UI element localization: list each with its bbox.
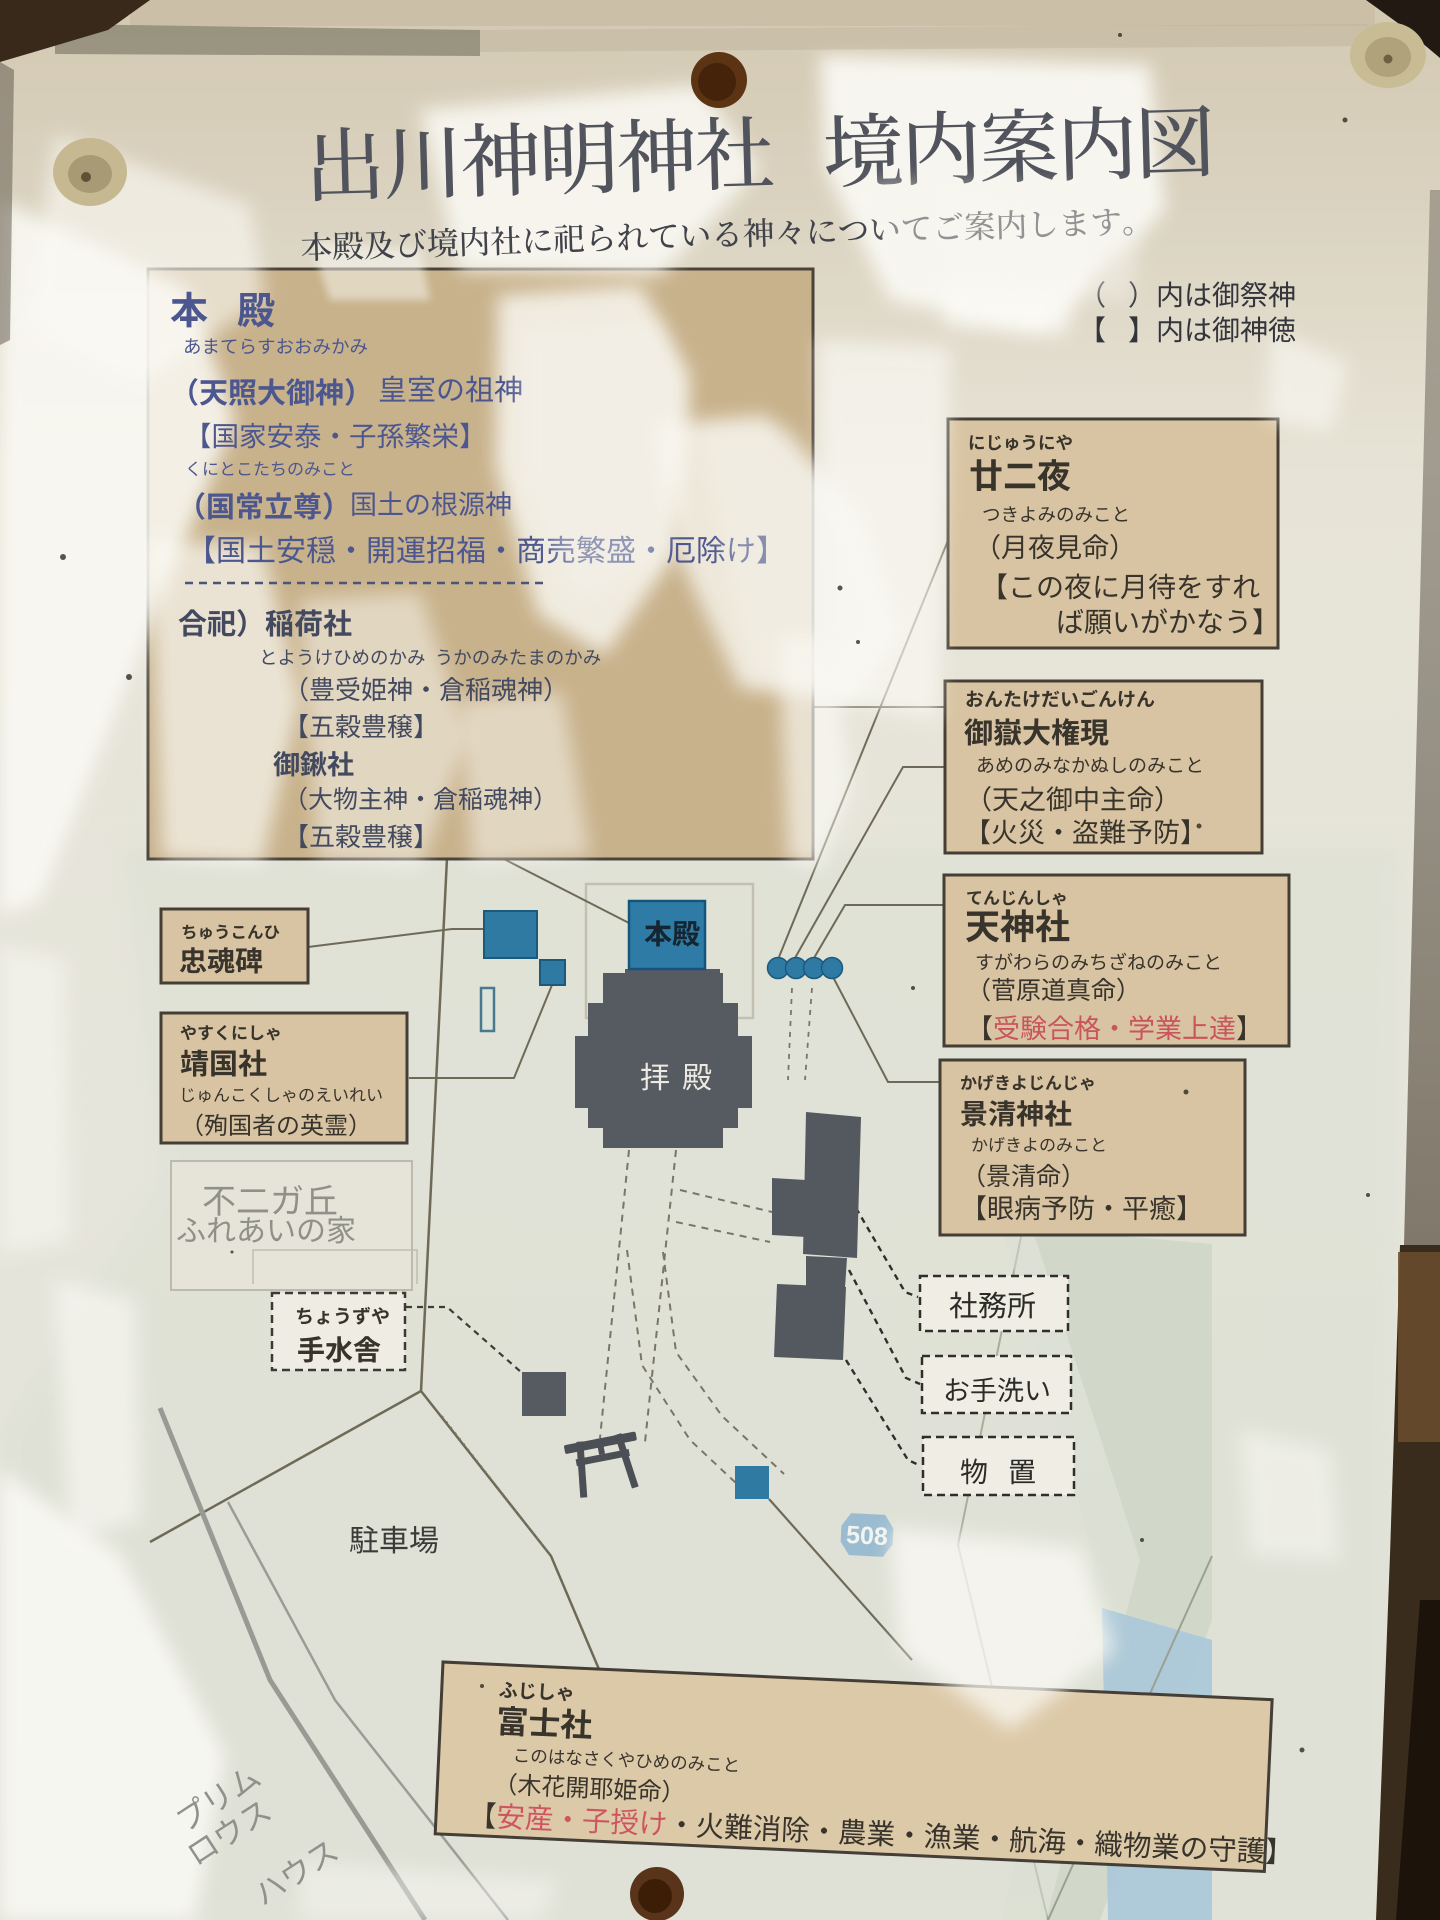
svg-text:508: 508 bbox=[845, 1521, 888, 1551]
